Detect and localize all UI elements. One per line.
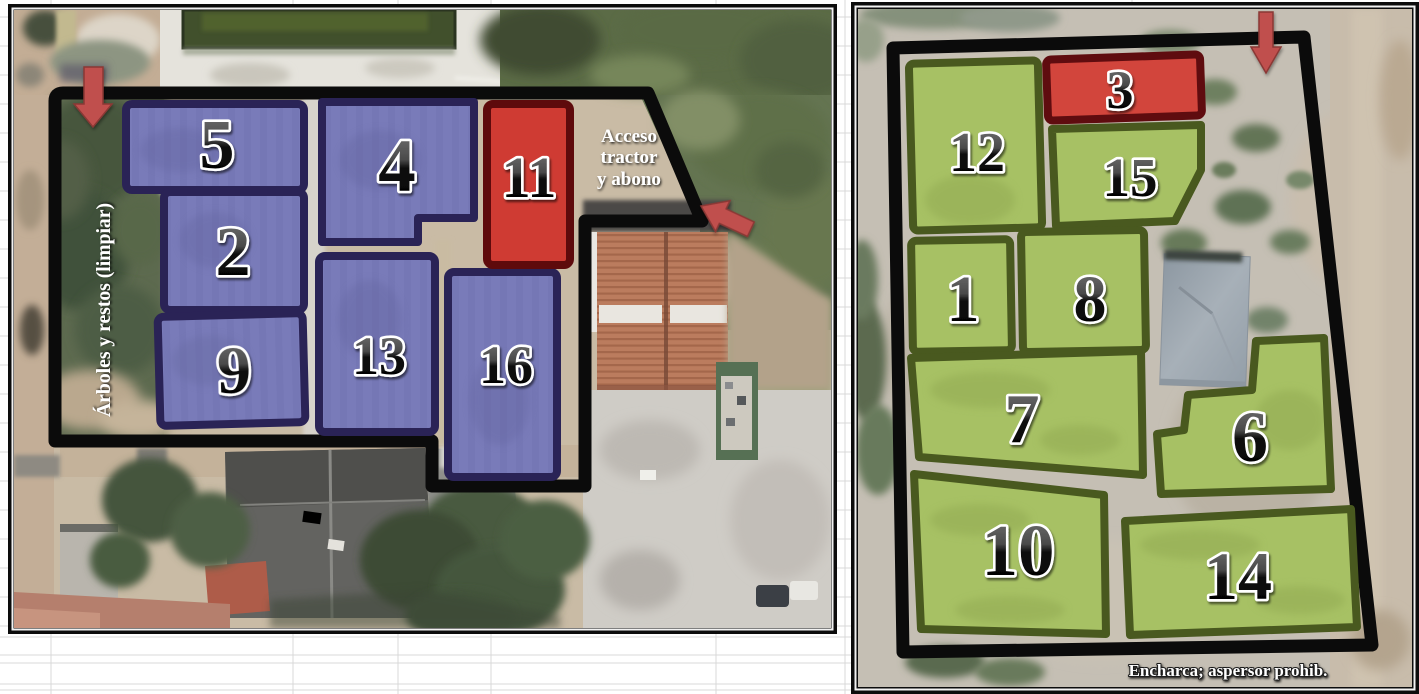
svg-text:10: 10 [982,510,1055,591]
svg-text:14: 14 [1204,538,1272,614]
svg-text:6: 6 [1232,397,1268,477]
svg-text:11: 11 [502,145,557,210]
svg-text:2: 2 [216,214,251,291]
svg-text:9: 9 [216,331,252,408]
svg-text:Encharca; aspersor prohib.: Encharca; aspersor prohib. [1129,661,1328,680]
svg-text:8: 8 [1074,263,1107,336]
svg-text:4: 4 [378,125,416,208]
svg-text:13: 13 [352,326,406,386]
svg-text:1: 1 [947,263,980,336]
svg-text:12: 12 [949,122,1005,184]
svg-text:15: 15 [1103,147,1158,208]
svg-text:7: 7 [1005,381,1040,458]
svg-text:Árboles y restos (limpiar): Árboles y restos (limpiar) [92,203,115,417]
svg-text:tractor: tractor [601,147,659,168]
svg-text:3: 3 [1107,60,1134,120]
svg-text:Acceso: Acceso [601,126,657,147]
svg-text:16: 16 [479,335,533,395]
svg-text:5: 5 [200,107,235,184]
svg-text:y abono: y abono [597,169,661,190]
